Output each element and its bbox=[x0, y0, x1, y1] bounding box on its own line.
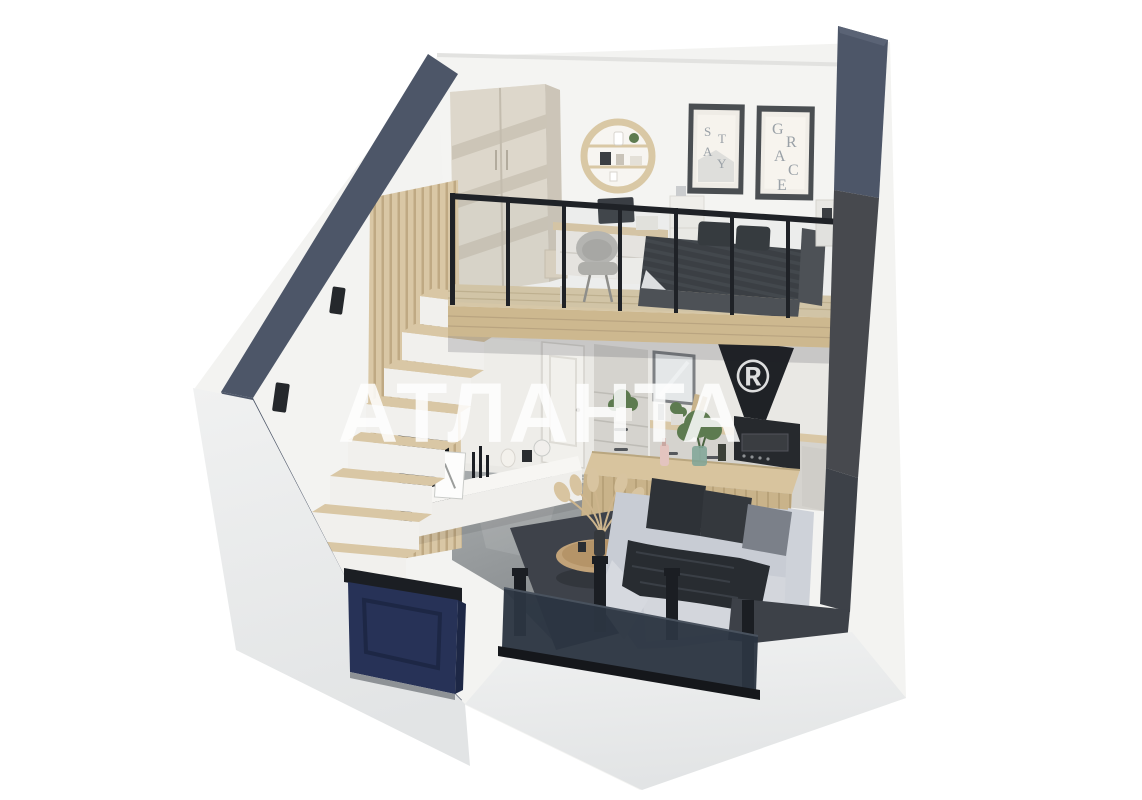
shelf-plant bbox=[629, 133, 639, 143]
railing-post bbox=[618, 205, 622, 311]
railing-post bbox=[506, 198, 510, 306]
railing-post bbox=[730, 212, 734, 315]
registered-trademark-symbol: ® bbox=[736, 350, 770, 402]
railing-post bbox=[562, 201, 566, 308]
sofa-pillow bbox=[742, 504, 792, 556]
poster-grace: G R A C E bbox=[755, 106, 815, 201]
poster-letter: A bbox=[703, 144, 713, 159]
railing-post bbox=[786, 216, 790, 318]
entrance-door bbox=[344, 568, 466, 700]
sofa-pillow bbox=[646, 478, 706, 536]
watermark: АТЛАНТА ® bbox=[338, 350, 770, 460]
poster-letter: Y bbox=[717, 156, 727, 171]
apartment-render: S T A Y G R A C E bbox=[0, 0, 1142, 800]
poster-letter: A bbox=[774, 148, 786, 165]
poster-letter: S bbox=[704, 124, 711, 139]
table-candle bbox=[578, 542, 586, 552]
watermark-text: АТЛАНТА bbox=[338, 366, 745, 460]
render-canvas: S T A Y G R A C E bbox=[0, 0, 1142, 800]
poster-letter: E bbox=[777, 177, 787, 194]
poster-letter: G bbox=[772, 121, 784, 138]
table-vase bbox=[594, 530, 605, 556]
poster-letter: T bbox=[718, 131, 726, 146]
round-wall-shelf bbox=[584, 122, 652, 190]
poster-letter: C bbox=[788, 162, 799, 179]
poster-stay: S T A Y bbox=[687, 104, 745, 195]
railing-post bbox=[674, 208, 678, 313]
poster-letter: R bbox=[786, 134, 797, 151]
railing-post bbox=[450, 193, 455, 305]
